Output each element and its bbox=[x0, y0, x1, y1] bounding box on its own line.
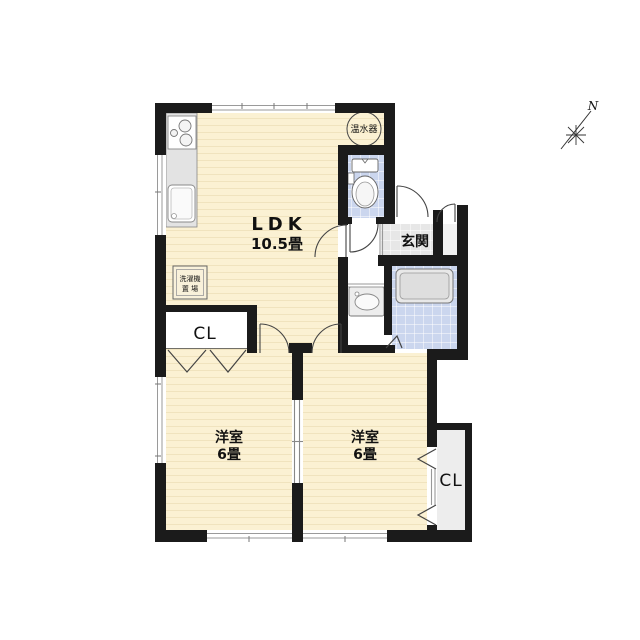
bedroom-right-label: 洋室 bbox=[351, 429, 379, 446]
sliding-partition-bedrooms bbox=[292, 400, 303, 483]
window-bedroom-right-south bbox=[303, 530, 387, 542]
floorplan-svg: LDK 10.5畳 玄関 温水器 CL CL 洋室 6畳 洋室 6畳 洗濯機 置… bbox=[0, 0, 640, 640]
ldk-size-label: 10.5畳 bbox=[251, 235, 303, 253]
door-toilet bbox=[350, 224, 378, 252]
compass-north-icon: N bbox=[561, 99, 599, 149]
window-bedroom-left-west bbox=[155, 377, 166, 463]
bedroom-left-label: 洋室 bbox=[215, 429, 243, 446]
kitchen-counter bbox=[166, 113, 197, 227]
bathtub-icon bbox=[396, 269, 453, 303]
window-bedroom-left-south bbox=[207, 530, 292, 542]
bedroom-left-size-label: 6畳 bbox=[217, 447, 241, 463]
washroom-entry-line bbox=[348, 284, 384, 287]
washbasin-icon bbox=[349, 287, 384, 316]
compass-north-label: N bbox=[587, 99, 599, 113]
floorplan-canvas: LDK 10.5畳 玄関 温水器 CL CL 洋室 6畳 洋室 6畳 洗濯機 置… bbox=[0, 0, 640, 640]
door-entry bbox=[397, 186, 428, 217]
entrance-label: 玄関 bbox=[401, 233, 429, 250]
water-heater-label: 温水器 bbox=[350, 123, 377, 135]
storage-floor bbox=[443, 224, 457, 257]
window-kitchen-west bbox=[155, 155, 166, 235]
window-ldk-north bbox=[212, 103, 335, 113]
ldk-label: LDK bbox=[251, 214, 306, 235]
bedroom-right-size-label: 6畳 bbox=[353, 447, 377, 463]
kitchen-sink-icon bbox=[168, 185, 195, 222]
floors bbox=[166, 113, 465, 530]
laundry-label-line1: 洗濯機 bbox=[180, 274, 201, 283]
closet-right-label: CL bbox=[439, 471, 462, 491]
laundry-label-line2: 置 場 bbox=[182, 284, 198, 293]
closet-left-label: CL bbox=[193, 324, 216, 344]
stove-icon bbox=[168, 116, 196, 149]
